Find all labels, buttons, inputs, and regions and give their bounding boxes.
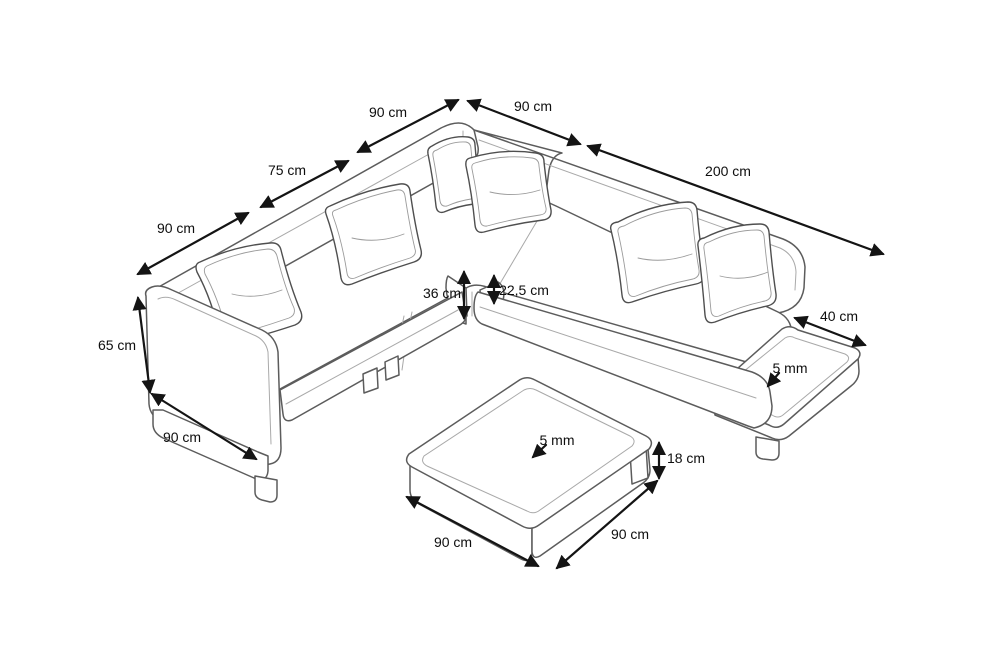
dim-label-back-left-width: 90 cm [369,104,407,120]
dim-label-backrest-length: 75 cm [268,162,306,178]
dim-label-coffee-table-width: 90 cm [434,534,472,550]
dim-label-side-table-depth: 40 cm [820,308,858,324]
sofa-drawing [146,123,860,561]
dim-label-coffee-table-depth: 90 cm [611,526,649,542]
sofa-dimension-diagram: 90 cm 90 cm 75 cm 200 cm 90 cm 65 cm 36 … [0,0,992,661]
dim-label-coffee-table-height: 18 cm [667,450,705,466]
diagram-svg: 90 cm 90 cm 75 cm 200 cm 90 cm 65 cm 36 … [0,0,992,661]
dim-label-arm-front-width: 90 cm [163,429,201,445]
armrest-foot [255,476,277,502]
dim-label-chaise-length: 200 cm [705,163,751,179]
dim-label-platform-height: 22,5 cm [499,282,549,298]
side-table-foot [756,437,779,460]
dim-label-seat-height: 36 cm [423,285,461,301]
dim-label-side-table-top: 5 mm [773,360,808,376]
dim-label-left-side-depth: 90 cm [157,220,195,236]
dim-label-back-right-width: 90 cm [514,98,552,114]
dim-label-coffee-table-top: 5 mm [540,432,575,448]
dim-label-overall-height: 65 cm [98,337,136,353]
